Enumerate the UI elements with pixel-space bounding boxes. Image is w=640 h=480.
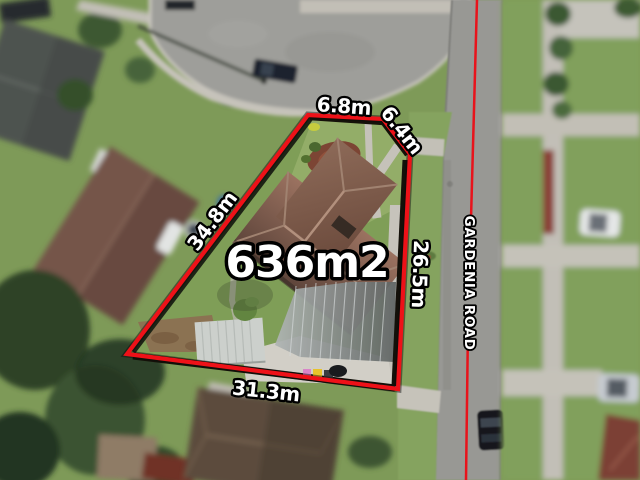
crossing-path (502, 114, 640, 136)
tree (543, 72, 569, 96)
right-neighborhood (502, 0, 640, 480)
driving-car (477, 409, 505, 450)
footpath-east (543, 0, 563, 480)
dimension-front: 6.8m (316, 92, 372, 120)
tree (57, 79, 93, 111)
road-name-label: GARDENIA ROAD (461, 216, 477, 351)
dark-object (329, 365, 347, 377)
yellow-shrub (308, 123, 320, 131)
parked-car-white (579, 209, 621, 238)
area-label: 636m2 (225, 237, 388, 288)
tree (348, 436, 392, 468)
dirt-blotch (151, 332, 179, 344)
shrub (309, 142, 321, 152)
parked-car-top (165, 0, 195, 10)
grass-east (502, 0, 640, 480)
garage-roof (195, 318, 266, 368)
driveway-east (502, 370, 602, 396)
road-gutter-shadow (443, 160, 451, 390)
tree (125, 57, 155, 83)
tree (545, 2, 571, 26)
parked-car-silver (598, 373, 640, 402)
aerial-property-photo: 636m2 6.8m 6.4m 34.8m 26.5m 31.3m GARDEN… (0, 0, 640, 480)
aerial-photo-canvas: 636m2 6.8m 6.4m 34.8m 26.5m 31.3m GARDEN… (0, 0, 640, 480)
streetlight-pole (261, 78, 267, 84)
dimension-right: 26.5m (407, 240, 433, 308)
tree (552, 101, 572, 119)
road-sign (447, 181, 453, 187)
asphalt-patch (285, 32, 375, 72)
brick-fence (543, 150, 554, 234)
driveway-east (502, 245, 640, 267)
tree (549, 36, 573, 60)
asphalt-patch (208, 20, 268, 48)
footpath-top (300, 0, 460, 13)
shrub (301, 155, 311, 163)
